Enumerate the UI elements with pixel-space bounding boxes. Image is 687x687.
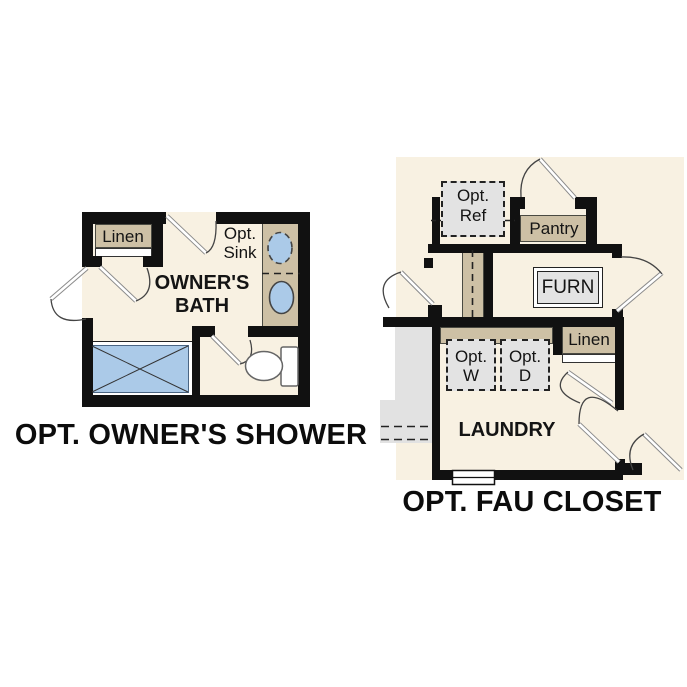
toilet-room-door	[212, 336, 252, 364]
toilet	[246, 347, 299, 386]
opt-ref-line2: Ref	[460, 206, 486, 225]
optional-sink-basin	[268, 233, 292, 264]
opt-w-line2: W	[463, 366, 479, 385]
laundry-label: LAUNDRY	[458, 419, 555, 442]
laundry-door	[579, 397, 619, 462]
hall-door-left	[383, 272, 433, 308]
linen-right-label: Linen	[568, 330, 610, 349]
fau-closet-caption: OPT. FAU CLOSET	[402, 486, 661, 519]
opt-ref-label: Opt. Ref	[457, 186, 489, 226]
owners-shower-caption: OPT. OWNER'S SHOWER	[15, 419, 367, 452]
pantry-door	[521, 159, 575, 198]
bath-entry-door	[167, 216, 216, 253]
window-opening	[453, 471, 495, 485]
exterior-door-right	[630, 434, 681, 470]
sink-basin	[270, 282, 294, 314]
linen-door	[100, 267, 150, 301]
opt-w-label: Opt. W	[455, 347, 487, 385]
furn-label: FURN	[542, 278, 595, 297]
hall-door-right	[617, 257, 662, 311]
floor-plan-page: Linen Opt. Sink OWNER'S BATH OPT. OWNER'…	[0, 0, 687, 687]
opt-sink-line1: Opt.	[224, 224, 256, 243]
pantry-label: Pantry	[529, 219, 578, 238]
exterior-door	[51, 268, 87, 320]
opt-d-line1: Opt.	[509, 347, 541, 366]
owners-bath-label: OWNER'S BATH	[155, 272, 250, 318]
opt-d-line2: D	[519, 366, 531, 385]
opt-d-label: Opt. D	[509, 347, 541, 385]
shower-x-mark	[92, 346, 188, 392]
opt-w-line1: Opt.	[455, 347, 487, 366]
opt-ref-line1: Opt.	[457, 186, 489, 205]
linen-label: Linen	[102, 227, 144, 246]
owners-bath-line2: BATH	[175, 295, 229, 317]
opt-sink-label: Opt. Sink	[223, 224, 256, 262]
owners-bath-line1: OWNER'S	[155, 272, 250, 294]
opt-sink-line2: Sink	[223, 243, 256, 262]
